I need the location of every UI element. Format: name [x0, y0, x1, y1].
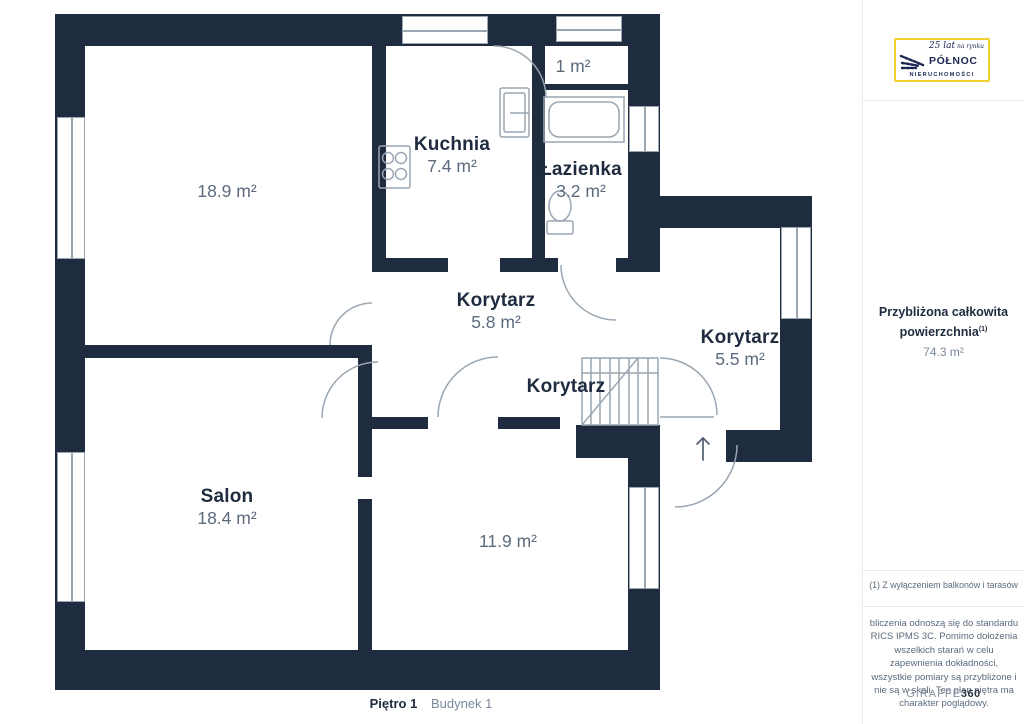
room-label-kuchnia: Kuchnia 7.4 m² — [414, 134, 490, 176]
total-area-value: 74.3 m² — [863, 345, 1024, 359]
room-name: Salon — [197, 486, 256, 508]
footnote-marker: (1) — [979, 326, 988, 333]
room-area: 5.8 m² — [457, 312, 536, 332]
room-label-11-9: 11.9 m² — [479, 531, 537, 551]
room-label-lazienka: Łazienka 3.2 m² — [540, 159, 622, 201]
building-label: Budynek 1 — [431, 696, 492, 711]
bird-logo-icon — [899, 52, 927, 74]
sidebar-divider — [863, 606, 1024, 607]
room-name: Korytarz — [701, 327, 780, 349]
total-area-block: Przybliżona całkowita powierzchnia(1) 74… — [863, 303, 1024, 359]
door-arc — [494, 46, 546, 98]
footnote-text: (1) Z wyłączeniem balkonów i tarasów — [863, 580, 1024, 590]
room-area: 7.4 m² — [414, 156, 490, 176]
room-area: 1 m² — [556, 56, 591, 76]
bathtub-icon — [544, 97, 624, 142]
floor-label: Piętro 1 — [370, 696, 418, 711]
room-area: 11.9 m² — [479, 531, 537, 551]
room-label-korytarz-55: Korytarz 5.5 m² — [701, 327, 780, 369]
room-label-salon: Salon 18.4 m² — [197, 486, 256, 528]
room-area: 18.9 m² — [197, 181, 256, 201]
total-area-heading: Przybliżona całkowita powierzchnia(1) — [863, 303, 1024, 341]
door-arc — [561, 265, 616, 320]
room-label-korytarz-mid: Korytarz — [527, 376, 606, 398]
room-name: Korytarz — [457, 290, 536, 312]
room-name: Korytarz — [527, 376, 606, 398]
giraffe360-watermark: GIRAFFE360 — [863, 688, 1024, 700]
room-label-korytarz-58: Korytarz 5.8 m² — [457, 290, 536, 332]
floorplan-page: 18.9 m² Kuchnia 7.4 m² 1 m² Łazienka 3.2… — [0, 0, 1024, 724]
room-area: 3.2 m² — [540, 181, 622, 201]
door-arc — [322, 362, 378, 418]
room-label-1m2: 1 m² — [556, 56, 591, 76]
door-arc — [438, 357, 498, 417]
sidebar-divider — [863, 100, 1024, 101]
info-sidebar: 25 lat na rynku PÓŁNOC NIERUCHOMOŚCI Prz… — [862, 0, 1024, 724]
logo-subbrand-text: NIERUCHOMOŚCI — [896, 72, 988, 78]
door-arc — [675, 445, 737, 507]
sidebar-divider — [863, 570, 1024, 571]
polnoc-nieruchomosci-logo: 25 lat na rynku PÓŁNOC NIERUCHOMOŚCI — [894, 38, 990, 82]
plan-footer: Piętro 1 Budynek 1 — [0, 696, 862, 711]
up-arrow-icon — [697, 438, 709, 460]
sink-icon — [500, 88, 529, 137]
room-name: Łazienka — [540, 159, 622, 181]
logo-brand-text: PÓŁNOC — [929, 55, 978, 67]
door-arc — [330, 303, 372, 345]
room-label-18-9: 18.9 m² — [197, 181, 256, 201]
room-name: Kuchnia — [414, 134, 490, 156]
logo-years-text: 25 lat na rynku — [929, 41, 984, 51]
room-area: 18.4 m² — [197, 508, 256, 528]
room-area: 5.5 m² — [701, 349, 780, 369]
stove-icon — [379, 146, 410, 188]
